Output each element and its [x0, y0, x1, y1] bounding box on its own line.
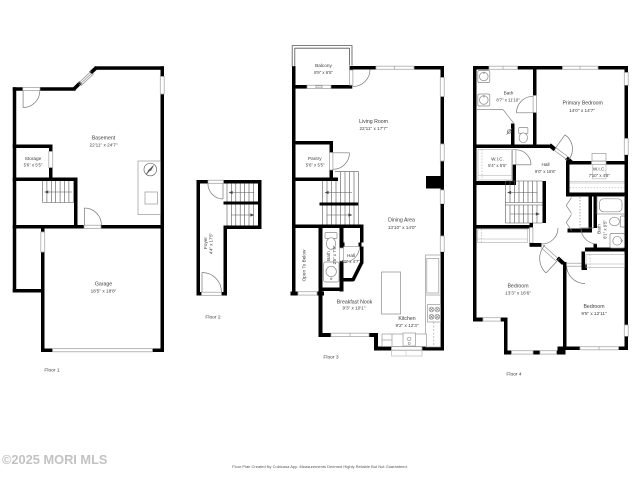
- svg-text:Hall: Hall: [347, 253, 355, 258]
- svg-text:7'10" x 4'8": 7'10" x 4'8": [589, 173, 611, 178]
- svg-text:Hall: Hall: [541, 162, 549, 167]
- svg-text:Floor 1: Floor 1: [44, 368, 60, 374]
- svg-text:Bedroom: Bedroom: [583, 304, 604, 310]
- svg-text:22'11" x 17'7": 22'11" x 17'7": [360, 126, 388, 131]
- svg-text:Pantry: Pantry: [308, 156, 322, 161]
- svg-text:Balcony: Balcony: [315, 63, 332, 68]
- svg-text:Basement: Basement: [92, 136, 116, 142]
- svg-text:Foyer: Foyer: [203, 237, 208, 249]
- svg-text:4'4" x 17'5": 4'4" x 17'5": [209, 232, 214, 254]
- svg-text:Storage: Storage: [25, 156, 42, 161]
- svg-text:Garage: Garage: [95, 282, 112, 288]
- svg-text:13'3" x 16'6": 13'3" x 16'6": [505, 291, 531, 296]
- svg-text:W.I.C.: W.I.C.: [593, 167, 606, 172]
- svg-text:Bath: Bath: [504, 91, 514, 96]
- svg-text:Bedroom: Bedroom: [507, 284, 528, 290]
- svg-text:Primary Bedroom: Primary Bedroom: [563, 100, 603, 106]
- svg-text:9'5" x 12'11": 9'5" x 12'11": [581, 311, 607, 316]
- svg-text:5'6" x 5'5": 5'6" x 5'5": [24, 163, 43, 168]
- svg-text:Kitchen: Kitchen: [398, 316, 415, 322]
- svg-text:4'9" x 4'7": 4'9" x 4'7": [341, 259, 360, 264]
- svg-text:9'0" x 16'6": 9'0" x 16'6": [535, 169, 557, 174]
- svg-text:W.I.C.: W.I.C.: [491, 156, 504, 161]
- svg-text:Dining Area: Dining Area: [388, 218, 415, 224]
- svg-text:Floor Plan Created By Cubicasa: Floor Plan Created By Cubicasa App. Meas…: [232, 464, 408, 469]
- svg-text:Floor 3: Floor 3: [323, 355, 339, 361]
- svg-text:18'5" x 18'8": 18'5" x 18'8": [91, 288, 117, 293]
- svg-text:2'5" x 7'6": 2'5" x 7'6": [332, 245, 337, 264]
- svg-text:14'0" x 14'7": 14'0" x 14'7": [569, 108, 595, 113]
- svg-text:22'11" x 24'7": 22'11" x 24'7": [90, 143, 118, 148]
- svg-text:9'2" x 12'3": 9'2" x 12'3": [395, 323, 418, 328]
- svg-text:Floor 4: Floor 4: [506, 372, 522, 378]
- svg-text:Bath: Bath: [597, 224, 602, 234]
- svg-text:Floor 2: Floor 2: [205, 315, 221, 321]
- svg-text:5'4" x 5'5": 5'4" x 5'5": [488, 163, 507, 168]
- svg-text:8'9" x 6'5": 8'9" x 6'5": [314, 70, 333, 75]
- svg-text:©2025 MORI MLS: ©2025 MORI MLS: [2, 452, 108, 467]
- svg-text:13'10" x 14'0": 13'10" x 14'0": [388, 225, 417, 230]
- svg-text:9'3" x 10'1": 9'3" x 10'1": [342, 306, 365, 311]
- svg-text:Living Room: Living Room: [359, 119, 388, 125]
- svg-text:Bath: Bath: [326, 251, 331, 261]
- svg-text:6'1" x 9'5": 6'1" x 9'5": [602, 220, 607, 239]
- svg-text:Open To Below: Open To Below: [302, 249, 307, 281]
- svg-text:8'7" x 11'10": 8'7" x 11'10": [496, 98, 520, 103]
- svg-text:5'6" x 5'5": 5'6" x 5'5": [306, 162, 325, 167]
